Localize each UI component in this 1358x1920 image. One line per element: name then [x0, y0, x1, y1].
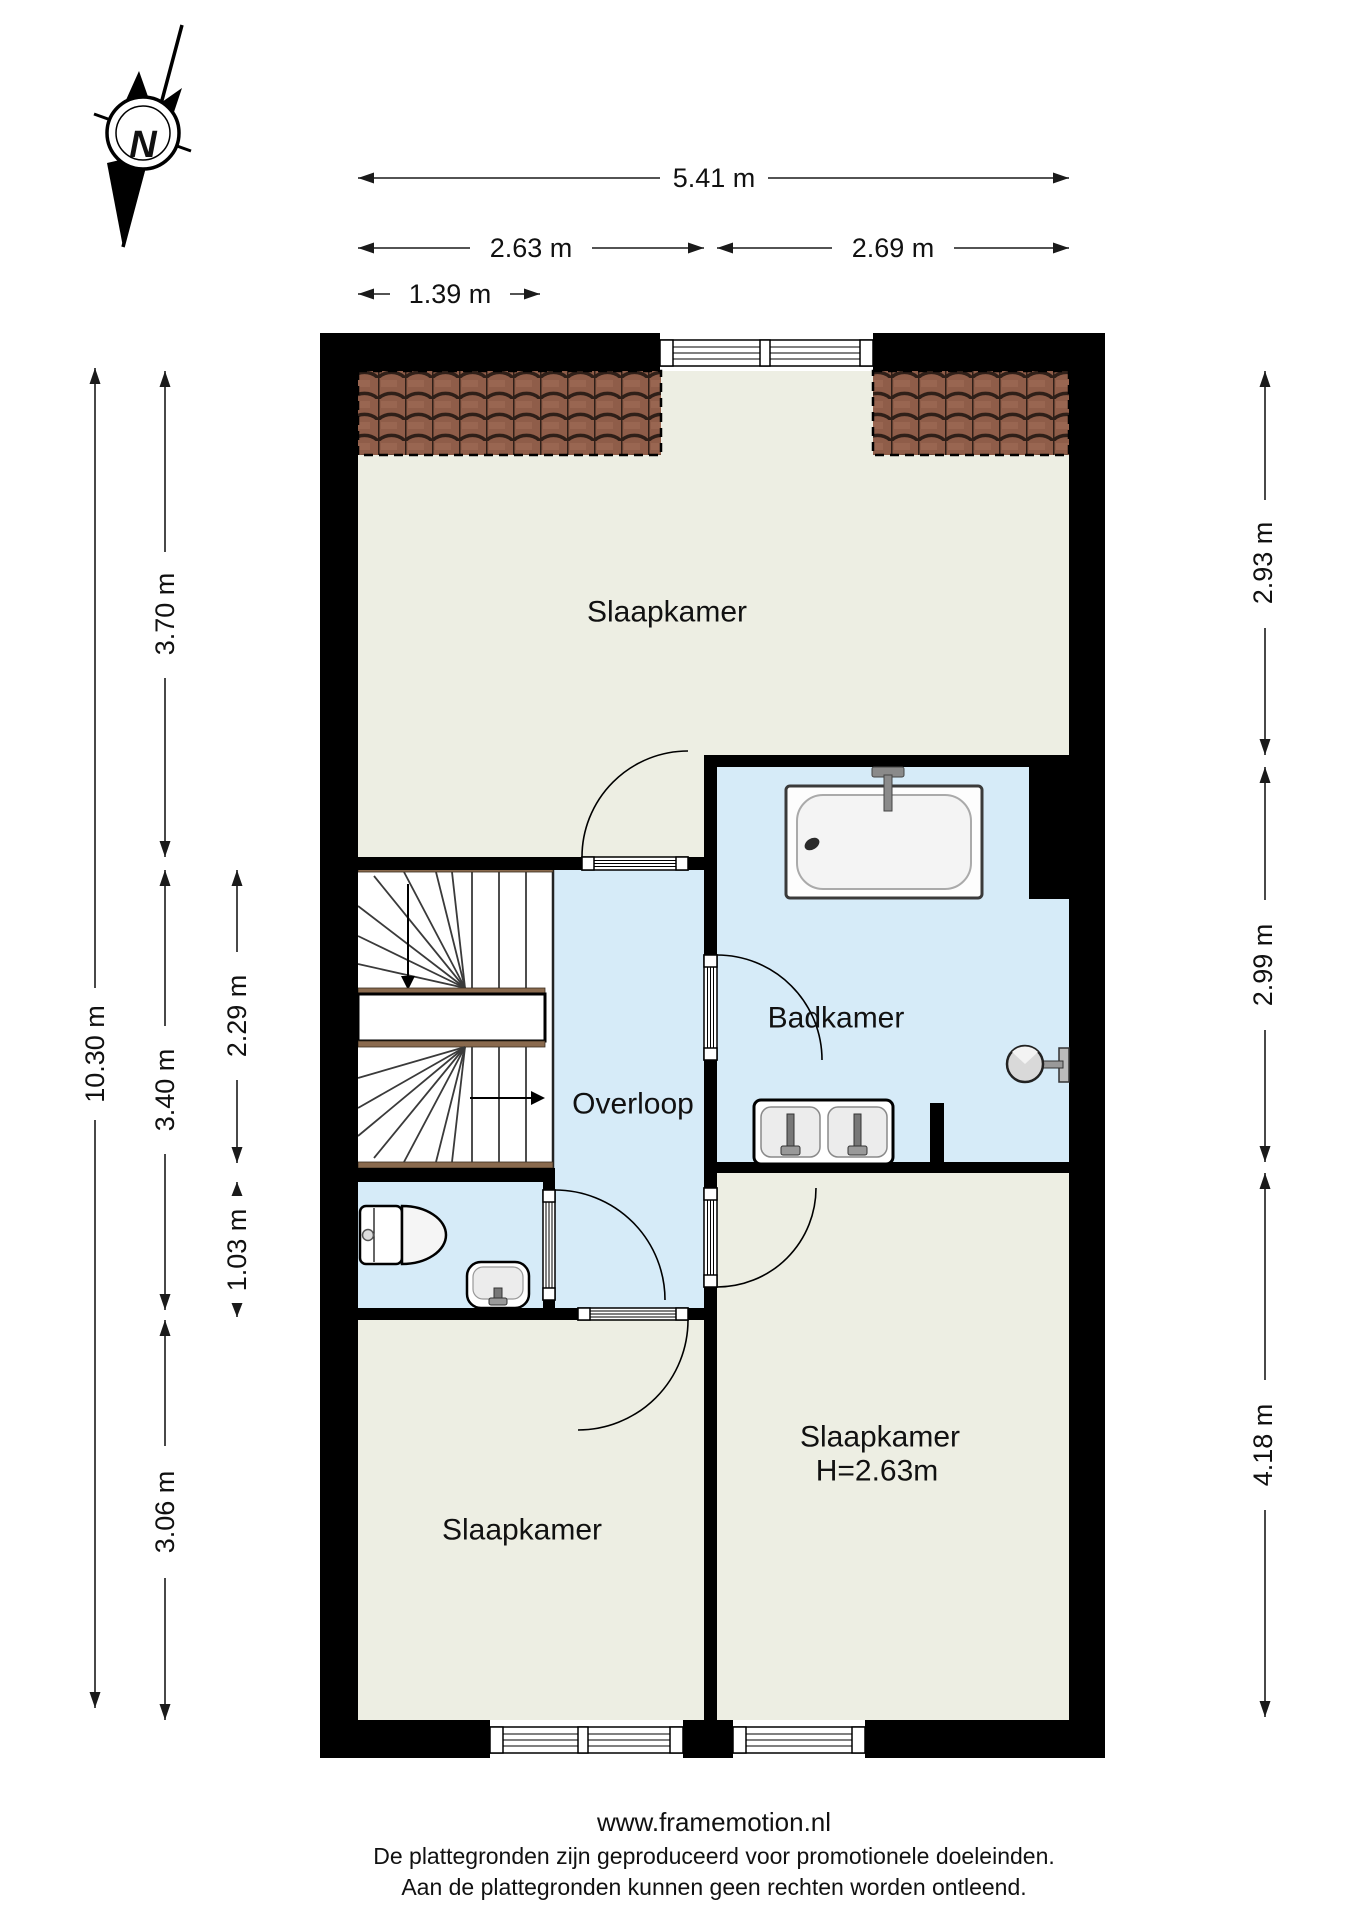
room-label-overloop: Overloop — [572, 1088, 694, 1121]
wall-chimney-block — [1029, 767, 1069, 899]
dim-label: 4.18 m — [1248, 1404, 1278, 1487]
wall-spine-lower — [704, 1287, 717, 1720]
wall-bathroom-north — [704, 755, 1069, 767]
window-bottom-right — [733, 1727, 865, 1753]
wall-landing-south-left — [358, 1308, 578, 1320]
wall-top-left — [320, 333, 660, 371]
dimension-top-541: 5.41 m — [358, 163, 1069, 193]
wall-wc-north — [358, 1168, 555, 1182]
dimension-left-370: 3.70 m — [150, 371, 180, 857]
toilet — [360, 1206, 446, 1264]
wall-bottom-right — [865, 1720, 1105, 1758]
wall-bottom-pier — [683, 1720, 733, 1758]
wall-spine-mid — [704, 1060, 717, 1188]
dim-label: 1.03 m — [222, 1209, 252, 1292]
footer-disclaimer-line1: De plattegronden zijn geproduceerd voor … — [373, 1843, 1055, 1869]
stair-void — [358, 994, 545, 1041]
toilet-flush-button — [363, 1230, 374, 1241]
roof-strip-left — [358, 371, 661, 455]
wall-bedroom-south-left — [358, 857, 582, 870]
floorplan-page: N 5.41 m 2.63 m 2.69 m 1.39 m 10.30 m 3.… — [0, 0, 1358, 1920]
dimension-left-1030: 10.30 m — [80, 368, 110, 1708]
dimension-left-340: 3.40 m — [150, 870, 180, 1310]
dim-label: 3.40 m — [150, 1049, 180, 1132]
basin-tap-left — [787, 1114, 794, 1148]
dim-label: 5.41 m — [673, 163, 756, 193]
dimension-top-139: 1.39 m — [358, 279, 540, 309]
wall-bottom-left — [320, 1720, 490, 1758]
bathtub — [786, 767, 982, 898]
double-washbasin — [754, 1100, 893, 1164]
dim-label: 10.30 m — [80, 1005, 110, 1103]
basin-tap-right — [854, 1114, 861, 1148]
dimension-left-103: 1.03 m — [222, 1182, 252, 1317]
dim-label: 2.69 m — [852, 233, 935, 263]
dimension-left-306: 3.06 m — [150, 1320, 180, 1720]
wall-bedroom-south-right — [688, 857, 704, 870]
room-label-slaapkamer-left: Slaapkamer — [442, 1514, 602, 1547]
dim-label: 3.70 m — [150, 573, 180, 656]
dim-label: 2.63 m — [490, 233, 573, 263]
room-label-slaapkamer-right: Slaapkamer — [800, 1421, 960, 1454]
window-top — [660, 340, 873, 366]
wall-top-right — [873, 333, 1105, 371]
wall-right — [1069, 333, 1105, 1758]
dimension-right-293: 2.93 m — [1248, 371, 1278, 755]
dim-label: 1.39 m — [409, 279, 492, 309]
room-label-slaapkamer-top: Slaapkamer — [587, 596, 747, 629]
footer-disclaimer-line2: Aan de plattegronden kunnen geen rechten… — [401, 1874, 1026, 1900]
dimension-top-269: 2.69 m — [717, 233, 1069, 263]
wall-shower-stub — [930, 1103, 944, 1163]
dimension-right-418: 4.18 m — [1248, 1173, 1278, 1717]
wall-wc-east-bottom — [543, 1300, 555, 1308]
shower-head — [1007, 1046, 1069, 1082]
dim-label: 2.29 m — [222, 975, 252, 1058]
room-label-badkamer: Badkamer — [768, 1002, 905, 1035]
dim-label: 3.06 m — [150, 1471, 180, 1554]
dim-label: 2.99 m — [1248, 924, 1278, 1007]
compass-north-icon: N — [94, 25, 191, 247]
room-label-slaapkamer-right-height: H=2.63m — [816, 1455, 939, 1488]
roof-strip-right — [873, 371, 1069, 455]
wall-left — [320, 333, 358, 1758]
floorplan-drawing: N 5.41 m 2.63 m 2.69 m 1.39 m 10.30 m 3.… — [0, 0, 1358, 1920]
dimension-right-299: 2.99 m — [1248, 767, 1278, 1162]
dimension-left-229: 2.29 m — [222, 870, 252, 1163]
wall-landing-south-right — [688, 1308, 704, 1320]
window-bottom-left — [490, 1727, 683, 1753]
staircase — [358, 866, 553, 1168]
compass-north-label: N — [129, 124, 158, 166]
footer-website: www.framemotion.nl — [596, 1807, 831, 1837]
dim-label: 2.93 m — [1248, 522, 1278, 605]
wall-wc-east-top — [543, 1182, 555, 1190]
wall-spine-upper — [704, 755, 717, 955]
wc-washbasin — [467, 1262, 529, 1308]
dimension-top-263: 2.63 m — [358, 233, 704, 263]
